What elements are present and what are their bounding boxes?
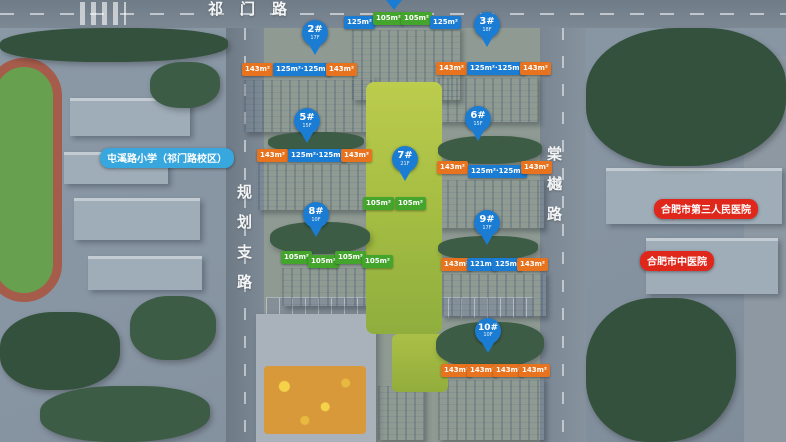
crosswalk	[80, 2, 126, 25]
pin-floors: 18F	[482, 28, 491, 33]
tree-belt	[0, 28, 228, 62]
pin-building-10[interactable]: 10#10F	[475, 318, 501, 360]
area-tag: 143m²	[521, 161, 552, 174]
area-tag: 105m²	[363, 197, 394, 210]
tree-belt-east	[586, 28, 786, 166]
pin-building-8[interactable]: 8#10F	[303, 202, 329, 244]
tree-cluster	[130, 296, 216, 360]
area-tag: 143m²	[257, 149, 288, 162]
area-tag: 125m²·125m²	[273, 63, 332, 76]
area-tag: 143m²	[436, 62, 467, 75]
pin-floors: 10F	[483, 333, 492, 338]
pin-building-5[interactable]: 5#15F	[294, 108, 320, 150]
pin-floors: 17F	[482, 226, 491, 231]
school-building	[74, 198, 200, 240]
road-label-top: 祁门路	[208, 0, 304, 19]
pin-building-7[interactable]: 7#21F	[392, 146, 418, 188]
landmark-hospital-north-bubble[interactable]: 合肥市第三人民医院	[654, 199, 758, 219]
pin-floors: 15F	[302, 124, 311, 129]
pin-building-3[interactable]: 3#18F	[474, 12, 500, 54]
tree-cluster	[0, 312, 120, 390]
pin-building-2[interactable]: 2#17F	[302, 20, 328, 62]
area-tag: 105m²	[395, 197, 426, 210]
area-tag: 125m²·125m²	[467, 62, 526, 75]
area-tag: 125m²	[430, 16, 461, 29]
school-building	[88, 256, 202, 290]
area-tag: 143m²	[520, 62, 551, 75]
area-tag: 125m²	[344, 16, 375, 29]
pin-floors: 17F	[310, 36, 319, 41]
pin-building-9[interactable]: 9#17F	[474, 210, 500, 252]
sports-track	[0, 58, 62, 302]
tree-cluster	[150, 62, 220, 108]
area-tag: 143m²	[437, 161, 468, 174]
area-tag: 105m²	[401, 12, 432, 25]
landmark-hospital-south-bubble[interactable]: 合肥市中医院	[640, 251, 714, 271]
pin-floors: 21F	[400, 162, 409, 167]
pin-building-6[interactable]: 6#15F	[465, 106, 491, 148]
area-tag: 143m²	[341, 149, 372, 162]
aerial-site-plan: 祁门路 规划支路 棠樾路 125m² 105m² 105m² 125m² 143…	[0, 0, 786, 442]
pin-floors: 15F	[473, 122, 482, 127]
kindergarten-roof-playground	[264, 366, 366, 434]
area-tag: 105m²	[362, 255, 393, 268]
landmark-school-bubble[interactable]: 屯溪路小学（祁门路校区）	[100, 148, 234, 168]
area-tag: 143m²	[517, 258, 548, 271]
road-label-right: 棠樾路	[544, 146, 565, 236]
road-label-left: 规划支路	[234, 184, 255, 304]
area-tag: 143m²	[519, 364, 550, 377]
area-tag: 143m²	[326, 63, 357, 76]
pin-floors: 10F	[311, 218, 320, 223]
area-tag: 125m²·125m²	[288, 149, 347, 162]
tree-cluster	[40, 386, 210, 442]
tower-9	[442, 270, 546, 316]
area-tag: 125m²·125m²	[468, 165, 527, 178]
tower-10	[438, 376, 544, 440]
area-tag: 143m²	[242, 63, 273, 76]
tree-belt-east-south	[586, 298, 736, 442]
pin-tip-building-1	[386, 0, 402, 18]
